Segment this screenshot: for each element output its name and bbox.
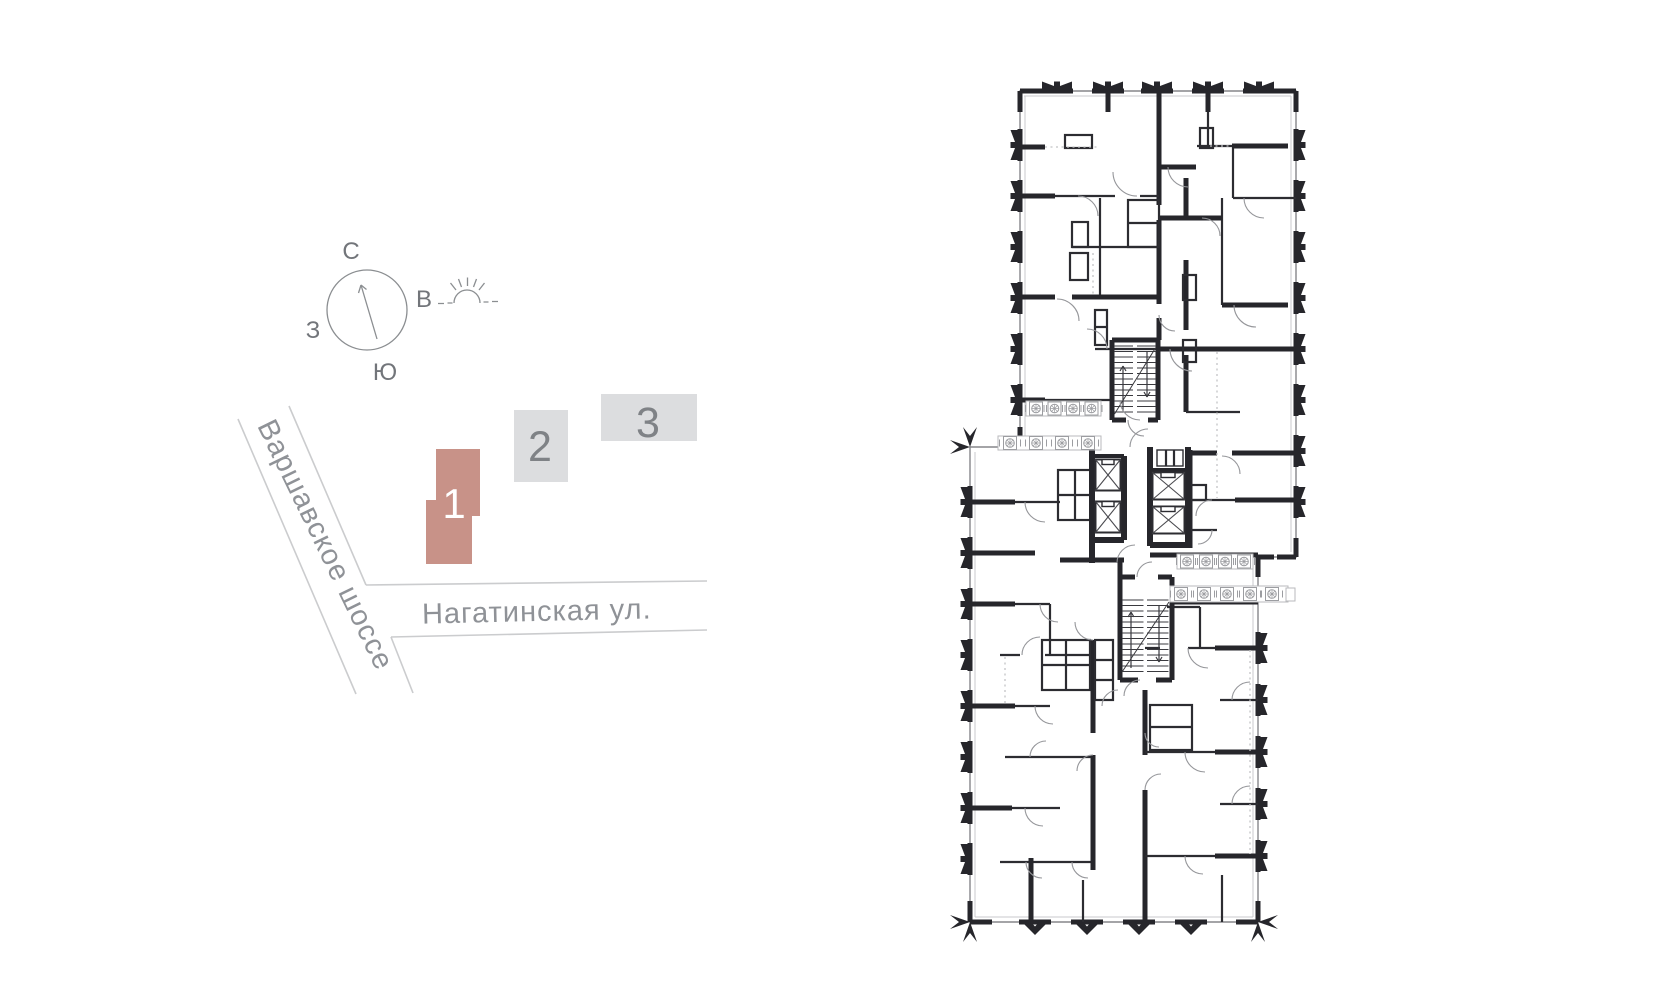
elevator-shaft (1153, 473, 1185, 500)
compass-north-label: С (342, 238, 359, 265)
map-buildings: 3 2 1 (426, 394, 697, 564)
site-map: Варшавское шоссе Нагатинская ул. С Ю З В… (238, 238, 707, 694)
floor-plan (950, 82, 1306, 943)
page: Варшавское шоссе Нагатинская ул. С Ю З В… (0, 0, 1666, 1000)
building-3-number: 3 (636, 399, 660, 447)
map-building-2[interactable]: 2 (514, 410, 568, 482)
door-arcs (1022, 167, 1264, 878)
compass-west-label: З (306, 317, 321, 344)
elevator-shaft (1096, 460, 1121, 491)
compass: С Ю З В (306, 238, 432, 386)
elevator-shaft (1096, 502, 1121, 533)
building-2-number: 2 (528, 423, 552, 471)
elevator-core (1092, 447, 1188, 563)
street-label-horizontal: Нагатинская ул. (422, 593, 652, 630)
street-line (391, 637, 413, 693)
ac-strip (998, 436, 1101, 450)
building-1-number: 1 (442, 480, 465, 527)
compass-needle-icon (359, 285, 378, 339)
site-plan-svg: Варшавское шоссе Нагатинская ул. С Ю З В… (0, 0, 1666, 1000)
ac-strip (1177, 554, 1255, 569)
sun-icon (438, 278, 498, 304)
staircase-upper (1112, 340, 1158, 420)
facade-piers (968, 89, 1299, 925)
ac-strip (1026, 401, 1103, 416)
ac-strip (1170, 586, 1295, 602)
elevator-shaft (1153, 507, 1185, 534)
compass-south-label: Ю (373, 359, 397, 386)
compass-circle (327, 270, 407, 350)
map-building-3[interactable]: 3 (601, 394, 697, 447)
vent-box (1157, 450, 1183, 466)
staircase-lower (1120, 560, 1172, 680)
street-label-diagonal: Варшавское шоссе (251, 415, 400, 676)
compass-east-label: В (416, 286, 432, 313)
street-line (366, 581, 707, 585)
map-building-1-selected[interactable]: 1 (426, 449, 480, 564)
street-line (391, 630, 707, 637)
facade-outline (970, 91, 1296, 922)
